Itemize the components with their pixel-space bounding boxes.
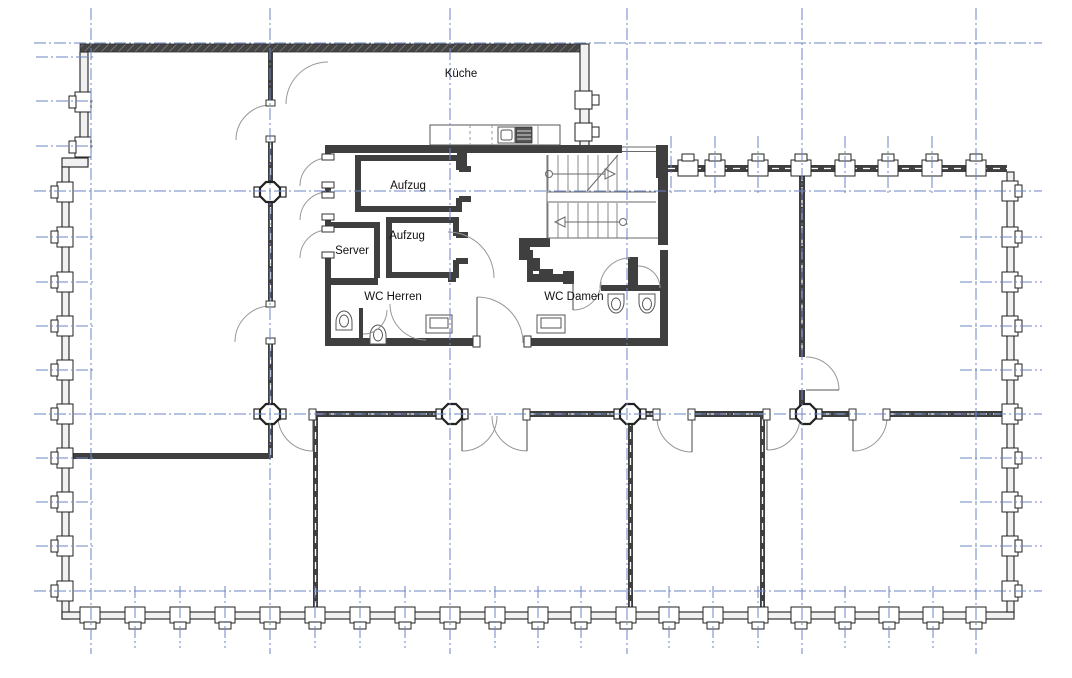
window-symbol	[678, 160, 698, 176]
window-symbol	[795, 622, 807, 629]
wall-server-east	[374, 228, 380, 278]
room-label-server: Server	[335, 245, 369, 257]
elevator-shaft-lower	[389, 220, 456, 275]
window-symbol	[592, 127, 599, 137]
window-symbol	[75, 92, 91, 112]
window-symbol	[84, 622, 96, 629]
floor-plan-canvas: Küche Aufzug Aufzug Server WC Herren WC …	[0, 0, 1072, 678]
window-symbol	[620, 622, 632, 629]
wall-top	[80, 44, 581, 52]
window-symbol	[575, 123, 592, 141]
window-symbol	[69, 141, 76, 153]
stair-up-arrow	[546, 169, 616, 179]
window-symbol	[51, 186, 58, 198]
floor-plan-drawing: Küche Aufzug Aufzug Server WC Herren WC …	[0, 0, 1072, 678]
window-symbol	[682, 154, 694, 161]
wall-core-top	[325, 145, 622, 153]
window-symbol	[616, 607, 636, 623]
room-label-elevator-1: Aufzug	[390, 180, 426, 192]
window-symbol	[795, 154, 807, 161]
columns-layer	[254, 182, 822, 424]
window-symbol	[791, 160, 811, 176]
window-symbol	[575, 91, 592, 109]
room-label-wc-men: WC Herren	[364, 291, 422, 303]
window-symbol	[791, 607, 811, 623]
wall-core-south-west	[325, 338, 477, 346]
window-symbol	[69, 96, 76, 108]
wall-stair-east	[658, 145, 668, 245]
stair	[546, 155, 659, 238]
window-symbol	[592, 95, 599, 105]
wall-left-jog	[62, 158, 88, 167]
room-label-wc-women: WC Damen	[544, 291, 603, 303]
stair-down-arrow	[555, 217, 627, 227]
room-label-elevator-2: Aufzug	[389, 230, 425, 242]
wall-left-room-south	[64, 453, 271, 459]
window-symbol	[80, 607, 100, 623]
window-symbol	[57, 182, 73, 202]
wall-core-south-east	[527, 338, 668, 346]
room-label-kitchen: Küche	[445, 68, 478, 80]
wall-core-east	[660, 250, 668, 346]
window-symbol	[75, 137, 91, 157]
wall-wc-herren-north	[325, 278, 378, 285]
